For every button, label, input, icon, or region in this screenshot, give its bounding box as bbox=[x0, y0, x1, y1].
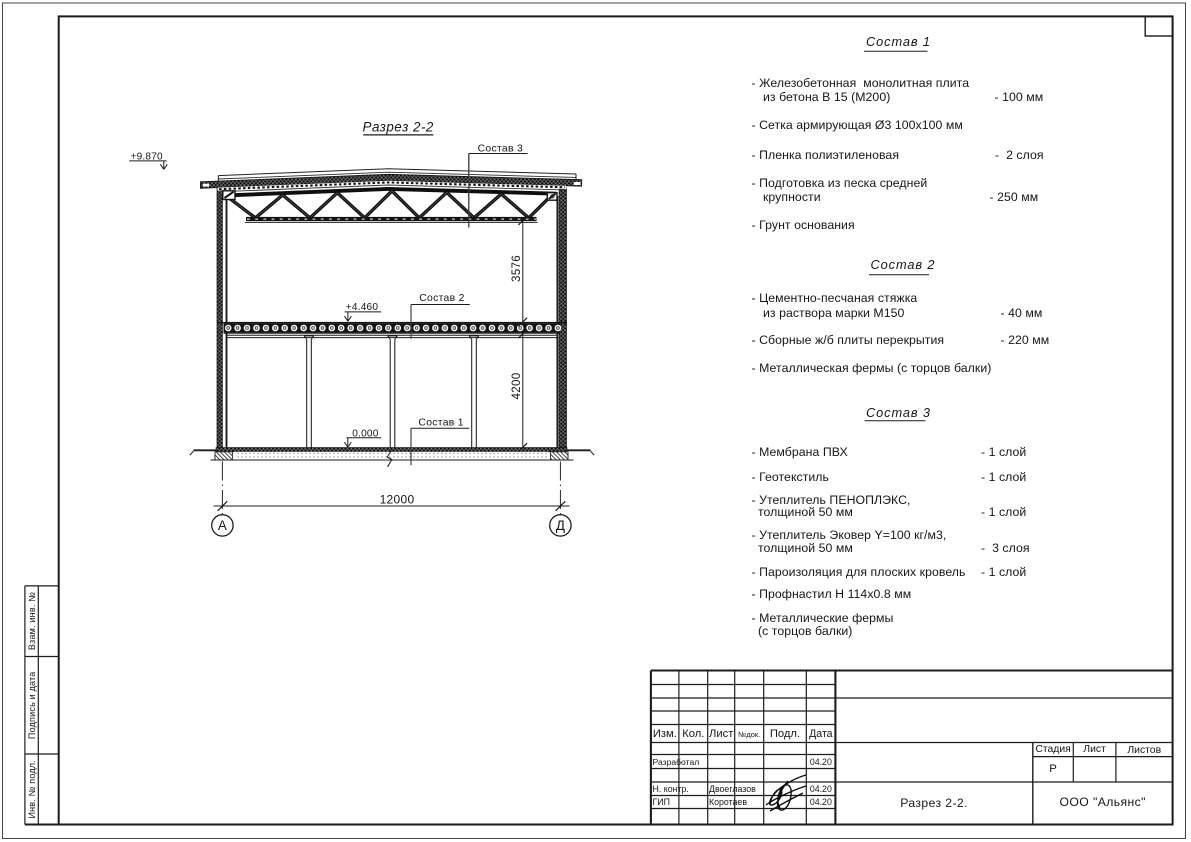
svg-text:12000: 12000 bbox=[380, 493, 415, 507]
svg-text:Д: Д bbox=[556, 518, 565, 533]
svg-text:Подпись и дата: Подпись и дата bbox=[27, 672, 37, 740]
svg-text:4200: 4200 bbox=[510, 373, 523, 400]
svg-text:Состав 3: Состав 3 bbox=[478, 144, 523, 155]
svg-text:Инв. № подл.: Инв. № подл. bbox=[27, 760, 37, 818]
svg-text:Состав 2: Состав 2 bbox=[419, 293, 465, 304]
svg-text:Взам. инв. №: Взам. инв. № bbox=[27, 592, 37, 650]
svg-text:Состав 1: Состав 1 bbox=[418, 418, 464, 429]
svg-text:А: А bbox=[218, 518, 227, 533]
svg-text:3576: 3576 bbox=[510, 255, 523, 282]
svg-text:Разрез 2-2: Разрез 2-2 bbox=[363, 120, 434, 135]
